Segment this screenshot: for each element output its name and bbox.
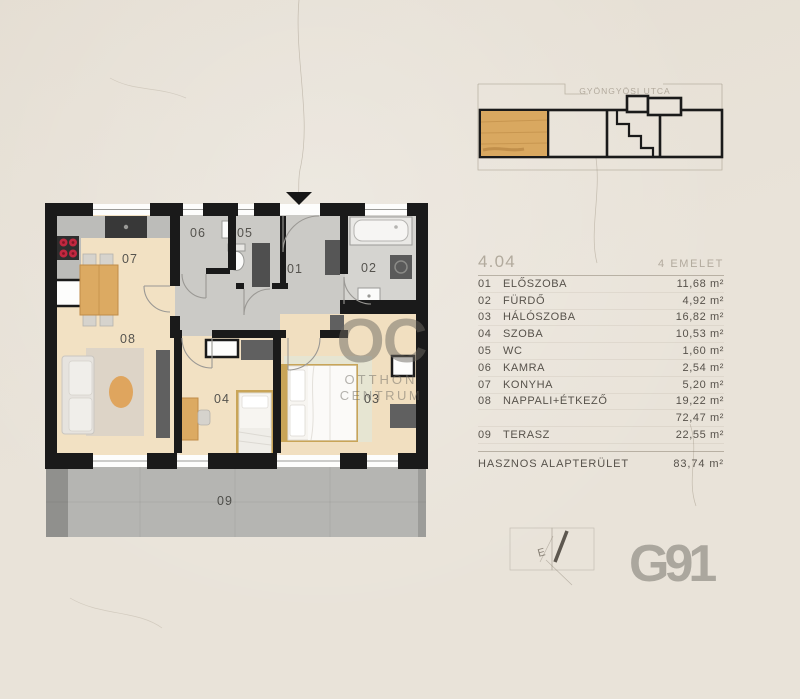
room-label-06: 06 [190,226,206,240]
room-label-08: 08 [120,332,136,346]
room-label-04: 04 [214,392,230,406]
unit-table: 4.04 4 EMELET 01 ELŐSZOBA 11,68 m² 02 FÜ… [478,252,724,476]
room-num: 08 [478,395,503,407]
tv-unit [156,350,170,438]
highlighted-unit-cell [481,111,547,156]
room-name: NAPPALI+ÉTKEZŐ [503,395,676,407]
room-label-09: 09 [217,494,233,508]
table-row: 01 ELŐSZOBA 11,68 m² [478,276,724,293]
single-bed-04 [236,390,274,456]
table-row: 04 SZOBA 10,53 m² [478,326,724,343]
room-label-05: 05 [237,226,253,240]
stove [57,236,79,260]
unit-number: 4.04 [478,252,516,272]
room-label-01: 01 [287,262,303,276]
room-area: 11,68 m² [677,278,724,290]
watermark: OC OTTHON CENTRUM [337,307,427,403]
site-plan: GYÖNGYÖSI UTCA [478,84,722,170]
table-row: 08 NAPPALI+ÉTKEZŐ 19,22 m² [478,394,724,411]
total-row: HASZNOS ALAPTERÜLET 83,74 m² [478,452,724,476]
room-name: KAMRA [503,362,683,374]
table-row: 07 KONYHA 5,20 m² [478,377,724,394]
terrace [46,461,426,537]
street-label: GYÖNGYÖSI UTCA [579,86,670,96]
room-name: KONYHA [503,379,683,391]
unit-table-header: 4.04 4 EMELET [478,252,724,276]
table-row: 06 KAMRA 2,54 m² [478,360,724,377]
room-num: 07 [478,379,503,391]
hall-wardrobe [325,240,340,275]
stamp-letter: E [536,546,546,559]
room-name: FÜRDŐ [503,295,683,307]
room-num: 03 [478,311,503,323]
watermark-line1: OTTHON [345,372,418,387]
dining-table [80,254,118,326]
floor-label: 4 EMELET [658,258,724,270]
table-row: 02 FÜRDŐ 4,92 m² [478,293,724,310]
cabinet-04 [206,340,238,357]
total-label: HASZNOS ALAPTERÜLET [478,458,673,470]
room-name: TERASZ [503,429,676,441]
room-num: 05 [478,345,503,357]
room-area: 1,60 m² [683,345,725,357]
room-num: 09 [478,429,503,441]
room-num: 04 [478,328,503,340]
table-row: 05 WC 1,60 m² [478,343,724,360]
room-area: 22,55 m² [676,429,724,441]
brand-logo: G91 [629,535,716,593]
floorplan-page: GYÖNGYÖSI UTCA [0,0,800,699]
terrace-row: 09 TERASZ 22,55 m² [478,427,724,444]
room-num: 06 [478,362,503,374]
washing-machine [390,255,412,279]
hall-shaft [252,243,270,287]
north-arrow [286,192,312,205]
room-area: 4,92 m² [683,295,725,307]
kitchen-niche [55,280,81,306]
subtotal-row: 72,47 m² [478,410,724,427]
room-label-07: 07 [122,252,138,266]
watermark-line2: CENTRUM [340,388,423,403]
sofa [62,356,94,434]
room-area: 16,82 m² [676,311,724,323]
total-area: 83,74 m² [673,458,724,470]
room-name: HÁLÓSZOBA [503,311,676,323]
architect-stamp: E [510,528,594,585]
room-area: 10,53 m² [676,328,724,340]
subtotal-area: 72,47 m² [676,412,724,424]
table-row: 03 HÁLÓSZOBA 16,82 m² [478,310,724,327]
wardrobe-04 [241,340,273,360]
room-area: 5,20 m² [683,379,725,391]
room-name: SZOBA [503,328,676,340]
pouf [109,376,133,408]
room-area: 2,54 m² [683,362,725,374]
room-name: ELŐSZOBA [503,278,677,290]
watermark-initials: OC [337,307,427,376]
room-area: 19,22 m² [676,395,724,407]
room-num: 01 [478,278,503,290]
room-label-02: 02 [361,261,377,275]
room-num: 02 [478,295,503,307]
wardrobe-03 [390,404,416,428]
bathtub [350,217,412,245]
room-name: WC [503,345,683,357]
